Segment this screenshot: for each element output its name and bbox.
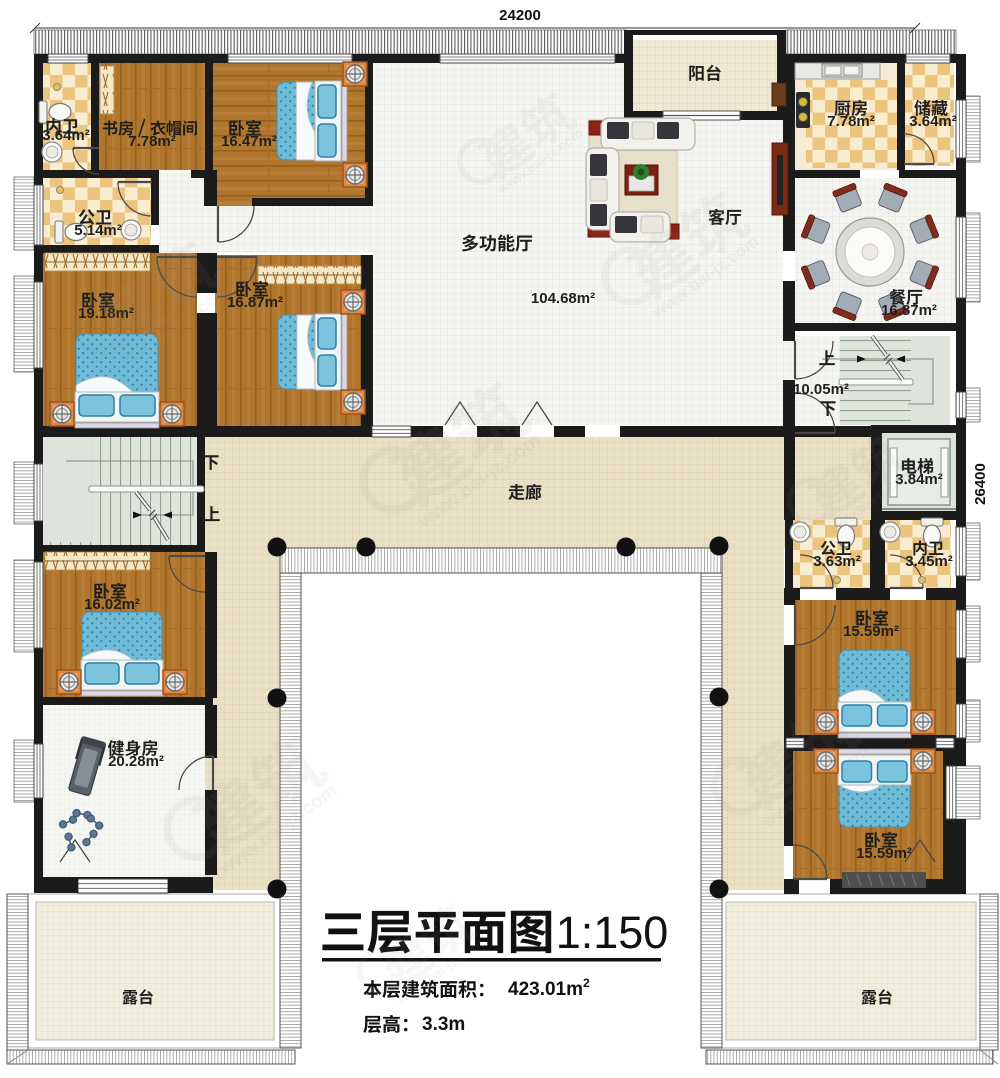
svg-text:24200: 24200 — [499, 7, 541, 24]
svg-text:5.14m²: 5.14m² — [74, 222, 122, 239]
svg-text:3.64m²: 3.64m² — [42, 127, 90, 144]
svg-text:26400: 26400 — [972, 463, 989, 505]
svg-text:104.68m²: 104.68m² — [531, 290, 595, 307]
svg-text:20.28m²: 20.28m² — [108, 753, 164, 770]
svg-text:16.87m²: 16.87m² — [227, 294, 283, 311]
svg-text:2: 2 — [583, 976, 590, 990]
svg-text:15.59m²: 15.59m² — [856, 845, 912, 862]
svg-text:423.01m: 423.01m — [508, 979, 583, 1000]
svg-text:3.64m²: 3.64m² — [909, 113, 957, 130]
svg-text:3.63m²: 3.63m² — [813, 553, 861, 570]
svg-text:15.59m²: 15.59m² — [843, 623, 899, 640]
svg-text:3.45m²: 3.45m² — [905, 553, 953, 570]
svg-text:7.78m²: 7.78m² — [128, 133, 176, 150]
svg-text:10.05m²: 10.05m² — [793, 381, 849, 398]
svg-text:7.78m²: 7.78m² — [827, 113, 875, 130]
svg-text:16.87m²: 16.87m² — [881, 302, 937, 319]
svg-text:3.3m: 3.3m — [422, 1014, 465, 1035]
svg-text:1:150: 1:150 — [556, 907, 669, 958]
svg-text:16.47m²: 16.47m² — [221, 133, 277, 150]
svg-text:16.02m²: 16.02m² — [84, 596, 140, 613]
